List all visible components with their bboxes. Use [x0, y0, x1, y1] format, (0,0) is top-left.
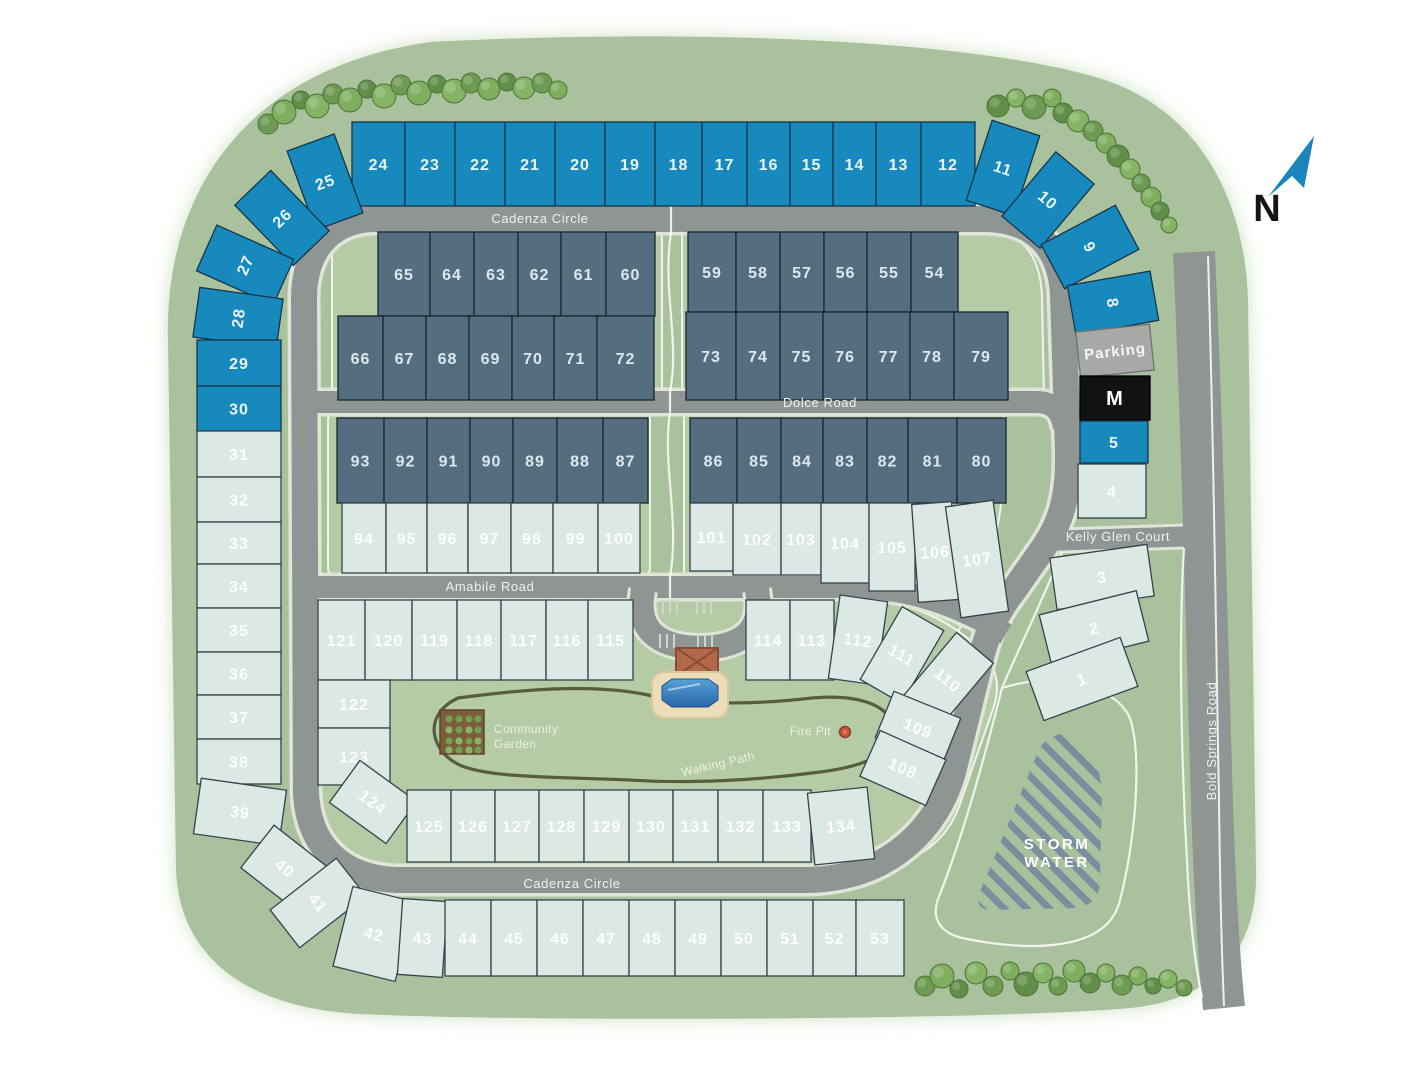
tree-icon: [987, 95, 1009, 117]
lot-129[interactable]: 129: [584, 790, 629, 862]
lot-number-label: 101: [697, 530, 727, 547]
lot-number-label: 39: [229, 803, 251, 823]
lot-number-label: 33: [229, 536, 249, 553]
lot-63[interactable]: 63: [474, 232, 518, 316]
lot-number-label: 129: [592, 819, 622, 836]
road-label-cadenza-bottom: Cadenza Circle: [523, 876, 620, 891]
storm-water-label-line2: WATER: [1024, 854, 1090, 871]
lot-number-label: 54: [925, 265, 945, 282]
lot-number-label: 113: [798, 633, 827, 650]
lot-117[interactable]: 117: [501, 600, 546, 680]
lot-number-label: 99: [566, 531, 586, 548]
lot-number-label: 19: [620, 157, 640, 174]
lot-84[interactable]: 84: [781, 418, 823, 503]
lot-59[interactable]: 59: [688, 232, 736, 312]
lot-number-label: 55: [879, 265, 899, 282]
lot-88[interactable]: 88: [557, 418, 603, 503]
lot-number-label: 106: [920, 544, 951, 563]
lot-number-label: 90: [482, 453, 502, 470]
lot-103[interactable]: 103: [781, 503, 821, 575]
tree-icon: [478, 78, 500, 100]
lot-number-label: 114: [754, 633, 783, 650]
lot-number-label: 45: [504, 931, 524, 948]
lot-number-label: 14: [845, 157, 865, 174]
lot-24[interactable]: 24: [352, 122, 405, 206]
lot-number-label: 94: [354, 531, 374, 548]
lot-95[interactable]: 95: [386, 503, 427, 573]
lot-number-label: 87: [616, 453, 636, 470]
lot-number-label: 52: [825, 931, 845, 948]
tree-icon: [513, 77, 535, 99]
lot-number-label: 84: [792, 453, 812, 470]
lot-92[interactable]: 92: [384, 418, 427, 503]
lot-34[interactable]: 34: [197, 564, 281, 608]
tree-icon: [1129, 967, 1147, 985]
lot-number-label: 51: [780, 931, 800, 948]
lot-65[interactable]: 65: [378, 232, 430, 316]
lot-23[interactable]: 23: [405, 122, 455, 206]
lot-number-label: 105: [877, 540, 907, 557]
lot-number-label: 71: [566, 351, 586, 368]
lot-M[interactable]: M: [1080, 376, 1150, 420]
lot-number-label: 58: [748, 265, 768, 282]
community-site-plan: 2423222120191817161514131225262728293031…: [0, 0, 1407, 1080]
lot-4[interactable]: 4: [1078, 464, 1146, 518]
lot-number-label: 119: [420, 633, 449, 650]
lot-number-label: 98: [522, 531, 542, 548]
lot-73[interactable]: 73: [686, 312, 736, 400]
lot-number-label: 63: [486, 267, 506, 284]
lot-number-label: 57: [792, 265, 812, 282]
lot-68[interactable]: 68: [426, 316, 469, 400]
lot-21[interactable]: 21: [505, 122, 555, 206]
lot-number-label: 49: [688, 931, 708, 948]
lot-number-label: 30: [229, 401, 249, 418]
lot-56[interactable]: 56: [824, 232, 867, 312]
lot-16[interactable]: 16: [747, 122, 790, 206]
lot-number-label: 21: [520, 157, 540, 174]
lot-69[interactable]: 69: [469, 316, 512, 400]
storm-water-label-line1: STORM: [1024, 836, 1090, 853]
lot-number-label: 127: [502, 819, 532, 836]
lot-128[interactable]: 128: [539, 790, 584, 862]
lot-number-label: 46: [550, 931, 570, 948]
lot-102[interactable]: 102: [733, 503, 781, 575]
lot-32[interactable]: 32: [197, 477, 281, 522]
lot-131[interactable]: 131: [673, 790, 718, 862]
lot-number-label: 100: [604, 531, 634, 548]
lot-83[interactable]: 83: [823, 418, 867, 503]
lot-number-label: 80: [972, 453, 992, 470]
lot-22[interactable]: 22: [455, 122, 505, 206]
lot-46[interactable]: 46: [537, 900, 583, 976]
tree-icon: [1159, 970, 1177, 988]
lot-45[interactable]: 45: [491, 900, 537, 976]
lot-36[interactable]: 36: [197, 652, 281, 695]
lot-38[interactable]: 38: [197, 739, 281, 784]
tree-icon: [1176, 980, 1192, 996]
lot-67[interactable]: 67: [383, 316, 426, 400]
tree-icon: [930, 964, 954, 988]
lot-number-label: 24: [369, 157, 389, 174]
lot-number-label: 23: [420, 157, 440, 174]
lot-number-label: 13: [889, 157, 909, 174]
tree-icon: [1097, 964, 1115, 982]
lot-number-label: 18: [669, 157, 689, 174]
lot-number-label: 15: [802, 157, 822, 174]
lot-58[interactable]: 58: [736, 232, 780, 312]
tree-icon: [1161, 217, 1177, 233]
lot-17[interactable]: 17: [702, 122, 747, 206]
lot-number-label: 122: [339, 697, 369, 714]
lot-80[interactable]: 80: [957, 418, 1006, 503]
community-garden: [440, 710, 484, 754]
lot-number-label: 20: [570, 157, 590, 174]
lot-86[interactable]: 86: [690, 418, 737, 503]
tree-icon: [1145, 978, 1161, 994]
lot-130[interactable]: 130: [629, 790, 673, 862]
lot-number-label: 64: [442, 267, 462, 284]
lot-number-label: 67: [395, 351, 415, 368]
lot-number-label: 43: [412, 930, 433, 948]
lot-62[interactable]: 62: [518, 232, 561, 316]
lot-number-label: 31: [229, 447, 249, 464]
tree-icon: [1049, 977, 1067, 995]
lot-number-label: 121: [327, 633, 357, 650]
lot-number-label: M: [1106, 388, 1124, 410]
lot-number-label: 85: [749, 453, 769, 470]
lot-104[interactable]: 104: [821, 503, 869, 583]
lot-number-label: 22: [470, 157, 490, 174]
lot-30[interactable]: 30: [197, 386, 281, 431]
tree-icon: [965, 962, 987, 984]
lot-number-label: 36: [229, 666, 249, 683]
lot-number-label: 29: [229, 356, 249, 373]
tree-icon: [549, 81, 567, 99]
lot-number-label: 37: [229, 710, 249, 727]
lot-93[interactable]: 93: [337, 418, 384, 503]
lot-number-label: 73: [701, 349, 721, 366]
lot-71[interactable]: 71: [554, 316, 597, 400]
lot-number-label: 115: [596, 633, 625, 650]
lot-14[interactable]: 14: [833, 122, 876, 206]
bold-springs-road: [1194, 252, 1224, 1008]
lot-number-label: 74: [748, 349, 768, 366]
lot-82[interactable]: 82: [867, 418, 908, 503]
lot-number-label: 83: [835, 453, 855, 470]
lot-number-label: 68: [438, 351, 458, 368]
lot-50[interactable]: 50: [721, 900, 767, 976]
lot-64[interactable]: 64: [430, 232, 474, 316]
lot-number-label: 79: [971, 349, 991, 366]
lot-118[interactable]: 118: [457, 600, 501, 680]
lot-number-label: 32: [229, 492, 249, 509]
lot-number-label: 48: [642, 931, 662, 948]
lot-number-label: 126: [458, 819, 488, 836]
lot-116[interactable]: 116: [546, 600, 588, 680]
lot-79[interactable]: 79: [954, 312, 1008, 400]
lot-100[interactable]: 100: [598, 503, 640, 573]
lot-number-label: 4: [1107, 484, 1117, 501]
lot-number-label: 59: [702, 265, 722, 282]
lot-number-label: 88: [570, 453, 590, 470]
road-label-cadenza-top: Cadenza Circle: [491, 211, 588, 226]
lot-number-label: 50: [734, 931, 754, 948]
lot-44[interactable]: 44: [445, 900, 491, 976]
lot-132[interactable]: 132: [718, 790, 763, 862]
lot-66[interactable]: 66: [338, 316, 383, 400]
lot-number-label: 5: [1109, 435, 1119, 452]
tree-icon: [407, 81, 431, 105]
lot-number-label: 93: [351, 453, 371, 470]
lot-number-label: 16: [759, 157, 779, 174]
lot-number-label: 128: [547, 819, 577, 836]
tree-icon: [983, 976, 1003, 996]
tree-icon: [950, 980, 968, 998]
lot-61[interactable]: 61: [561, 232, 606, 316]
lot-101[interactable]: 101: [690, 503, 733, 571]
lot-43[interactable]: 43: [397, 899, 447, 978]
lot-60[interactable]: 60: [606, 232, 655, 316]
lot-number-label: 89: [525, 453, 545, 470]
lot-number-label: 34: [229, 579, 249, 596]
lot-18[interactable]: 18: [655, 122, 702, 206]
tree-icon: [1033, 963, 1053, 983]
lot-number-label: 56: [836, 265, 856, 282]
lot-99[interactable]: 99: [553, 503, 598, 573]
lot-number-label: 96: [438, 531, 458, 548]
lot-57[interactable]: 57: [780, 232, 824, 312]
lot-number-label: 53: [870, 931, 890, 948]
lot-98[interactable]: 98: [511, 503, 553, 573]
lot-number-label: 65: [394, 267, 414, 284]
lot-number-label: 47: [596, 931, 616, 948]
lot-48[interactable]: 48: [629, 900, 675, 976]
lot-number-label: 35: [229, 623, 249, 640]
lot-54[interactable]: 54: [911, 232, 958, 312]
lot-72[interactable]: 72: [597, 316, 654, 400]
lot-81[interactable]: 81: [908, 418, 957, 503]
lot-47[interactable]: 47: [583, 900, 629, 976]
lot-number-label: 91: [439, 453, 459, 470]
lot-number-label: 97: [480, 531, 500, 548]
lot-77[interactable]: 77: [867, 312, 910, 400]
lot-13[interactable]: 13: [876, 122, 921, 206]
lot-number-label: 81: [923, 453, 943, 470]
lot-37[interactable]: 37: [197, 695, 281, 739]
lot-97[interactable]: 97: [468, 503, 511, 573]
lot-number-label: 78: [922, 349, 942, 366]
fire-pit: [840, 727, 851, 738]
lot-15[interactable]: 15: [790, 122, 833, 206]
lot-number-label: 95: [397, 531, 417, 548]
lot-113[interactable]: 113: [790, 600, 834, 680]
lot-Parking[interactable]: Parking: [1076, 324, 1154, 377]
lot-75[interactable]: 75: [780, 312, 823, 400]
lot-number-label: 70: [523, 351, 543, 368]
swimming-pool: [662, 679, 718, 707]
lot-number-label: 28: [229, 307, 249, 329]
lot-119[interactable]: 119: [412, 600, 457, 680]
lot-number-label: 61: [574, 267, 594, 284]
fire-pit-label: Fire Pit: [790, 724, 831, 738]
lot-number-label: 134: [825, 817, 856, 837]
lot-number-label: 82: [878, 453, 898, 470]
lot-78[interactable]: 78: [910, 312, 954, 400]
lot-20[interactable]: 20: [555, 122, 605, 206]
lot-51[interactable]: 51: [767, 900, 813, 976]
lot-number-label: 130: [636, 819, 666, 836]
compass-north-label: N: [1253, 188, 1280, 230]
lot-49[interactable]: 49: [675, 900, 721, 976]
lot-number-label: 125: [414, 819, 444, 836]
lot-number-label: 103: [786, 532, 816, 549]
road-label-kelly-glen: Kelly Glen Court: [1066, 529, 1170, 544]
lot-35[interactable]: 35: [197, 608, 281, 652]
tree-icon: [1022, 95, 1046, 119]
lot-94[interactable]: 94: [342, 503, 386, 573]
lot-33[interactable]: 33: [197, 522, 281, 564]
lot-53[interactable]: 53: [856, 900, 904, 976]
lot-number-label: 102: [742, 532, 772, 549]
road-label-dolce: Dolce Road: [783, 395, 857, 410]
site-plan-map: 2423222120191817161514131225262728293031…: [0, 0, 1407, 1080]
lot-number-label: 38: [229, 754, 249, 771]
lot-90[interactable]: 90: [470, 418, 513, 503]
community-garden-label-line1: Community: [494, 722, 558, 736]
lot-number-label: 76: [835, 349, 855, 366]
lot-134[interactable]: 134: [807, 787, 874, 865]
lot-127[interactable]: 127: [495, 790, 539, 862]
lot-31[interactable]: 31: [197, 431, 281, 477]
lot-number-label: 72: [616, 351, 636, 368]
lot-89[interactable]: 89: [513, 418, 557, 503]
lot-121[interactable]: 121: [318, 600, 365, 680]
lot-number-label: 120: [374, 633, 404, 650]
compass: N: [1253, 136, 1314, 230]
lot-number-label: 77: [879, 349, 899, 366]
lot-number-label: 132: [726, 819, 756, 836]
lot-number-label: 12: [938, 157, 958, 174]
lot-105[interactable]: 105: [869, 503, 915, 591]
lot-number-label: 104: [830, 536, 860, 553]
lot-number-label: 92: [396, 453, 416, 470]
lot-52[interactable]: 52: [813, 900, 856, 976]
lot-126[interactable]: 126: [451, 790, 495, 862]
lot-19[interactable]: 19: [605, 122, 655, 206]
lot-125[interactable]: 125: [407, 790, 451, 862]
lot-29[interactable]: 29: [197, 340, 281, 386]
lot-70[interactable]: 70: [512, 316, 554, 400]
road-label-bold-springs: Bold Springs Road: [1204, 682, 1219, 801]
community-garden-label-line2: Garden: [494, 737, 536, 751]
lot-55[interactable]: 55: [867, 232, 911, 312]
lot-12[interactable]: 12: [921, 122, 975, 206]
lot-115[interactable]: 115: [588, 600, 633, 680]
lot-76[interactable]: 76: [823, 312, 867, 400]
lot-number-label: 75: [792, 349, 812, 366]
lot-number-label: 131: [681, 819, 711, 836]
lot-number-label: 62: [530, 267, 550, 284]
road-label-amabile: Amabile Road: [446, 579, 535, 594]
lot-120[interactable]: 120: [365, 600, 412, 680]
lot-85[interactable]: 85: [737, 418, 781, 503]
lot-number-label: 44: [458, 931, 478, 948]
lot-96[interactable]: 96: [427, 503, 468, 573]
lot-number-label: 66: [351, 351, 371, 368]
lot-87[interactable]: 87: [603, 418, 648, 503]
lot-122[interactable]: 122: [318, 680, 390, 728]
lot-133[interactable]: 133: [763, 790, 811, 862]
lot-number-label: 86: [704, 453, 724, 470]
lot-number-label: 60: [621, 267, 641, 284]
lot-number-label: 17: [715, 157, 735, 174]
lot-number-label: 118: [465, 633, 494, 650]
lot-5[interactable]: 5: [1080, 421, 1148, 463]
lot-number-label: 116: [553, 633, 582, 650]
lot-number-label: 133: [772, 819, 802, 836]
lot-91[interactable]: 91: [427, 418, 470, 503]
lot-114[interactable]: 114: [746, 600, 790, 680]
lot-74[interactable]: 74: [736, 312, 780, 400]
lot-number-label: 69: [481, 351, 501, 368]
lot-number-label: 117: [509, 633, 538, 650]
